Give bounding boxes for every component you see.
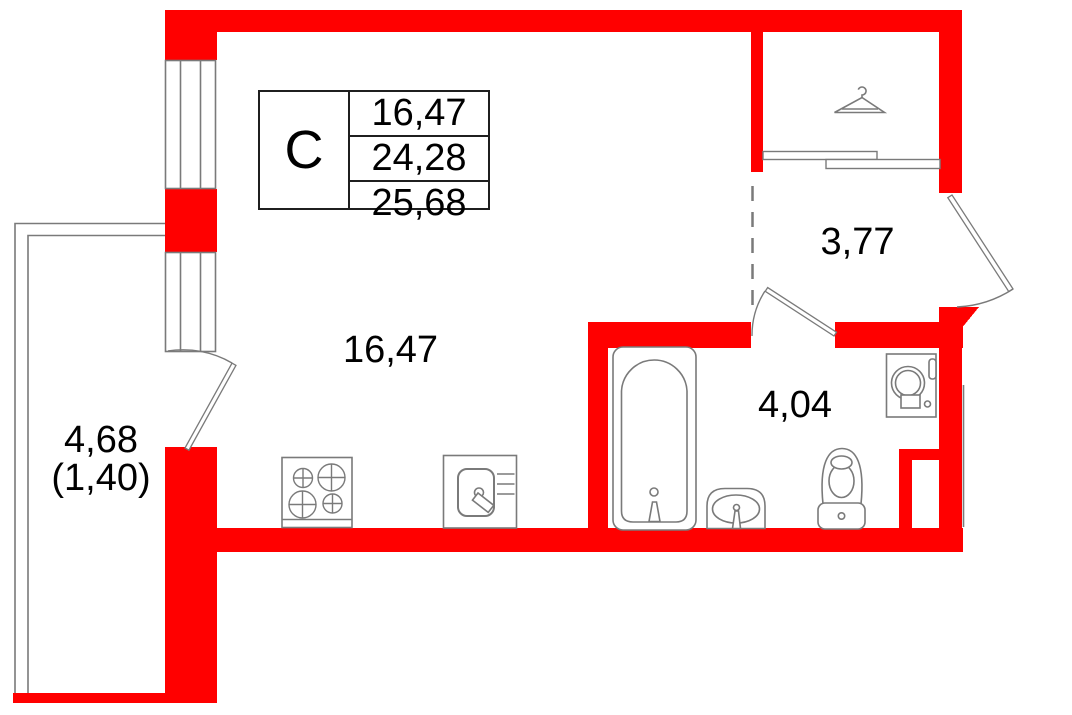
wall-left-lower <box>165 447 217 703</box>
window-1 <box>166 61 216 189</box>
linework <box>15 61 1013 694</box>
kitchen-sink-icon <box>444 456 517 529</box>
wardrobe-partition-wall <box>751 32 763 172</box>
balcony-area-reduced-value: (1,40) <box>31 459 171 497</box>
walls <box>13 10 979 703</box>
wall-right-upper <box>939 10 962 193</box>
unit-area-row-1: 16,47 <box>350 92 488 137</box>
wall-top <box>165 10 962 32</box>
balcony-door <box>168 350 236 450</box>
entrance-arrow <box>961 307 979 329</box>
bathroom-door <box>752 288 836 336</box>
washbasin-icon <box>707 489 765 529</box>
wall-right-lower <box>939 307 962 552</box>
bathroom-wall-left <box>588 322 608 528</box>
wall-left-pier <box>165 189 217 252</box>
wall-corner-top-left <box>165 10 217 60</box>
shaft-wall-left <box>899 449 912 528</box>
hallway-area-label: 3,77 <box>797 223 918 261</box>
balcony-area-value: 4,68 <box>31 421 171 459</box>
window-2 <box>166 253 216 352</box>
shaft-wall-top <box>899 449 940 460</box>
unit-area-row-3: 25,68 <box>350 182 488 225</box>
washing-machine-icon <box>887 354 937 417</box>
stove-icon <box>282 458 352 528</box>
floor-plan-drawing <box>0 0 1072 715</box>
hanger-icon <box>835 87 885 112</box>
wardrobe-sliding-door <box>763 152 940 169</box>
bathtub-icon <box>613 347 696 530</box>
entrance-door <box>948 195 1013 307</box>
wall-bottom <box>217 528 963 552</box>
toilet-icon <box>818 449 865 530</box>
living-room-area-label: 16,47 <box>330 331 451 369</box>
unit-title-block: C 16,47 24,28 25,68 <box>258 90 490 210</box>
unit-area-row-2: 24,28 <box>350 137 488 182</box>
balcony-area-label: 4,68 (1,40) <box>31 421 171 497</box>
bathroom-area-label: 4,04 <box>735 386 855 424</box>
balcony-parapet-wall <box>13 693 217 703</box>
unit-areas-column: 16,47 24,28 25,68 <box>350 92 488 208</box>
unit-type-cell: C <box>260 92 350 208</box>
bathroom-wall-top-left <box>588 322 751 348</box>
floor-plan: C 16,47 24,28 25,68 16,47 3,77 4,04 4,68… <box>0 0 1072 715</box>
